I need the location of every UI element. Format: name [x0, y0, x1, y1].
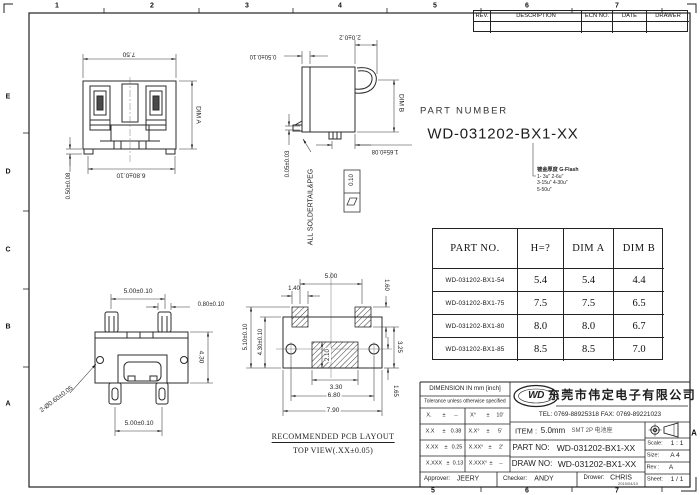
spec-row-b: 7.0 — [614, 338, 664, 361]
approver-label: Approver: — [424, 476, 450, 482]
rev-cell-empty — [647, 22, 689, 33]
spec-row-h: 5.4 — [518, 269, 564, 292]
tol-value: 0.38 — [451, 429, 462, 435]
tol-value: 10' — [496, 413, 503, 419]
tol-pm: ± — [489, 461, 492, 467]
dim-top-peg-width: 0.80±0.10 — [198, 302, 225, 308]
pcb-view — [246, 272, 399, 416]
tol-pm: ± — [442, 429, 445, 435]
soldertail-note: ALL SOLDERTAIL&PEG — [308, 169, 315, 246]
tol-value: -- — [499, 461, 503, 467]
pcb-caption-title: RECOMMENDED PCB LAYOUT — [272, 433, 395, 443]
drawer-date: 2015/04/10 — [618, 482, 638, 486]
tol-pm: ± — [486, 429, 489, 435]
dim-top-pegs-bottom: 5.00±0.10 — [125, 421, 154, 428]
zone-top-5: 5 — [433, 3, 437, 10]
zone-bottom-7: 7 — [615, 488, 619, 495]
sheet-label: Sheet: — [647, 477, 663, 483]
part-number-heading: PART NUMBER — [420, 106, 508, 116]
side-view — [284, 40, 412, 212]
zone-top-1: 1 — [55, 3, 59, 10]
zone-left-d: D — [5, 169, 10, 176]
spec-header-h: H=? — [518, 229, 564, 269]
dim-pcb-pad-height: 1.60 — [383, 279, 389, 291]
spec-header-a: DIM A — [564, 229, 614, 269]
plating-note: 镀金厚度 G-Flash 1- 3u" 2-6u" 3-15u" 4-30u" … — [537, 167, 579, 193]
draw-no-label: DRAW NO: — [512, 460, 553, 468]
spec-header-b: DIM B — [614, 229, 664, 269]
drawer-label: Drower: — [583, 475, 604, 481]
zone-left-e: E — [6, 94, 11, 101]
dim-pcb-bottom-inner: 3.30 — [330, 385, 343, 392]
spec-row-part: WD-031202-BX1-75 — [433, 292, 518, 315]
spec-row-part: WD-031202-BX1-85 — [433, 338, 518, 361]
company-logo-text: WD — [528, 391, 544, 401]
dim-front-foot: 0.50±0.08 — [66, 173, 72, 200]
tol-label: X.XX° — [469, 445, 484, 451]
top-view — [70, 294, 213, 436]
dim-pcb-pad-width: 1.40 — [288, 286, 300, 292]
tol-value: 2' — [499, 445, 503, 451]
rev-cell-empty — [474, 22, 491, 33]
zone-top-3: 3 — [245, 3, 249, 10]
dim-pcb-pitch: 5.00 — [325, 274, 338, 281]
rev-header-drawer: DRAWER — [647, 11, 689, 22]
sheet-value: 1 / 1 — [671, 477, 684, 484]
tol-label: X. — [426, 413, 431, 419]
dim-side-left: 0.05±0.03 — [285, 151, 291, 178]
dim-front-height: DIM A — [194, 106, 201, 124]
item-desc: SMT 2P 电池座 — [571, 428, 612, 434]
third-angle-projection-icon — [649, 423, 679, 437]
tol-pm: ± — [488, 445, 491, 451]
draw-no-value: WD-031202-BX1-XX — [558, 460, 636, 469]
spec-row-a: 5.4 — [564, 269, 614, 292]
zone-bottom-6: 6 — [525, 488, 529, 495]
rev-cell-empty — [582, 22, 613, 33]
rev-header-ecn: ECN NO. — [582, 11, 613, 22]
revision-table: REV. DESCRIPTION ECN NO. DATE DRAWER — [473, 10, 688, 32]
tol-label: X.X — [426, 429, 435, 435]
front-view — [66, 54, 197, 174]
dim-front-width-top: 7.50 — [123, 50, 136, 57]
zone-left-b: B — [5, 324, 10, 331]
rev-value: A — [669, 465, 673, 472]
rev-header-date: DATE — [613, 11, 647, 22]
zone-left-a: A — [5, 401, 10, 408]
tolerance-note: Tolerance unless otherwise specified — [424, 400, 505, 405]
tol-value: 0.25 — [452, 445, 463, 451]
scale-value: 1 : 1 — [671, 441, 684, 448]
dim-pcb-left-inner: 4.30±0.10 — [258, 329, 264, 356]
spec-row-a: 7.5 — [564, 292, 614, 315]
dim-pcb-left-outer: 5.10±0.10 — [243, 324, 249, 351]
item-value: 5.0mm — [541, 427, 565, 435]
checker-label: Checker: — [503, 476, 527, 482]
tol-label: X° — [470, 413, 476, 419]
dim-pcb-bottom-mid: 6.80 — [327, 393, 342, 400]
rev-header-desc: DESCRIPTION — [491, 11, 582, 22]
tol-value: -- — [454, 413, 458, 419]
flatness-value: 0.10 — [349, 174, 355, 186]
tol-pm: ± — [442, 413, 445, 419]
zone-top-2: 2 — [150, 3, 154, 10]
tol-value: 0.13 — [453, 461, 464, 467]
spec-header-part: PART NO. — [433, 229, 518, 269]
rev-cell-empty — [613, 22, 647, 33]
part-number-value: WD-031202-BX1-XX — [427, 127, 578, 142]
size-value: A 4 — [670, 453, 679, 460]
tol-pm: ± — [444, 445, 447, 451]
spec-row-a: 8.5 — [564, 338, 614, 361]
spec-table: PART NO. H=? DIM A DIM B WD-031202-BX1-5… — [432, 228, 663, 360]
dimension-units-header: DIMENSION IN mm [inch] — [429, 386, 501, 392]
scale-label: Scale: — [647, 441, 662, 447]
zone-left-c: C — [5, 247, 10, 254]
spec-row-b: 4.4 — [614, 269, 664, 292]
company-tel: TEL: 0769-88925318 FAX: 0769-89221023 — [539, 412, 661, 418]
dim-pcb-right-upper: 3.25 — [396, 341, 402, 353]
dim-pcb-bottom-outer: 7.90 — [326, 408, 341, 415]
spec-row-a: 8.0 — [564, 315, 614, 338]
tol-value: 5' — [498, 429, 502, 435]
spec-row-part: WD-031202-BX1-80 — [433, 315, 518, 338]
spec-row-b: 6.7 — [614, 315, 664, 338]
spec-row-h: 8.5 — [518, 338, 564, 361]
zone-top-6: 6 — [525, 3, 529, 10]
part-number-leader — [533, 143, 536, 176]
item-label: ITEM : — [515, 427, 537, 435]
plating-note-title: 镀金厚度 G-Flash — [537, 167, 579, 174]
rev-cell-empty — [491, 22, 582, 33]
tol-label: X.XXX° — [469, 461, 487, 467]
tol-label: X.XXX — [426, 461, 442, 467]
zone-bottom-5: 5 — [431, 488, 435, 495]
zone-top-4: 4 — [338, 3, 342, 10]
plating-note-line: 5-50u" — [537, 187, 579, 194]
part-no-value: WD-031202-BX1-XX — [557, 444, 635, 453]
zone-top-7: 7 — [615, 3, 619, 10]
dim-front-width-bottom: 6.80±0.10 — [117, 171, 146, 178]
spec-row-part: WD-031202-BX1-54 — [433, 269, 518, 292]
zone-marker-right: A — [691, 429, 697, 438]
tol-label: X.X° — [468, 429, 479, 435]
drawing-sheet: 1 2 3 4 5 6 7 5 6 7 E D C B A A REV. DES… — [0, 0, 700, 495]
spec-row-h: 8.0 — [518, 315, 564, 338]
rev-label: Rev : — [647, 465, 660, 471]
dim-pcb-center-pad: 2.10 — [325, 348, 331, 362]
dim-top-pegs-top: 5.00±0.10 — [124, 289, 153, 296]
company-name: 东莞市伟定电子有限公司 — [548, 389, 697, 401]
dim-side-top: 2.0±0.2 — [339, 33, 361, 40]
size-label: Size: — [647, 453, 659, 459]
dim-side-height: DIM B — [397, 94, 404, 112]
tol-pm: ± — [446, 461, 449, 467]
dim-side-bottom: 1.65±0.08 — [372, 148, 399, 154]
part-no-label: PART NO: — [513, 444, 550, 452]
approver-name: JEERY — [457, 476, 479, 483]
tol-pm: ± — [486, 413, 489, 419]
tol-label: X.XX — [426, 445, 439, 451]
spec-row-h: 7.5 — [518, 292, 564, 315]
dim-pcb-right-lower: 1.65 — [392, 385, 398, 397]
checker-name: ANDY — [534, 476, 553, 483]
dim-top-height: 4.30 — [197, 351, 204, 364]
dim-side-top-left: 0.50±0.10 — [250, 53, 277, 59]
pcb-caption-subtitle: TOP VIEW(.XX±0.05) — [293, 447, 373, 455]
spec-row-b: 6.5 — [614, 292, 664, 315]
rev-header-rev: REV. — [474, 11, 491, 22]
